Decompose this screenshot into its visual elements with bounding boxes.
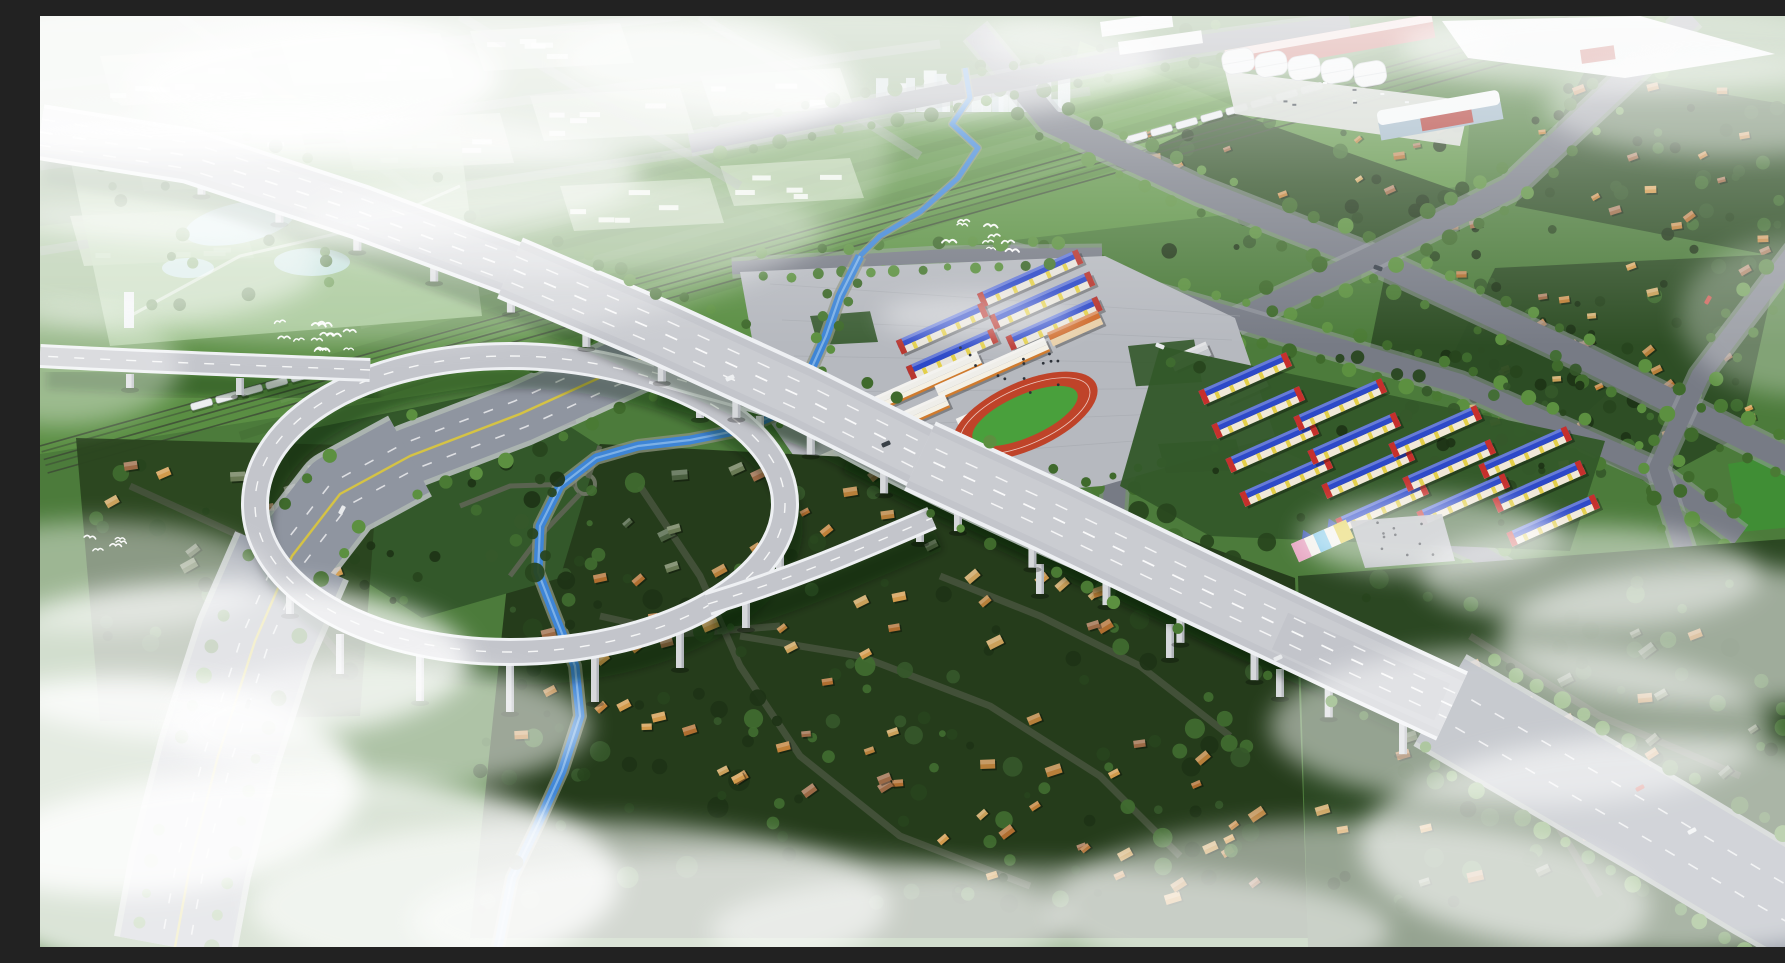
street-tree [826,345,835,354]
tree [577,768,590,781]
tree [1212,467,1219,474]
fog-patch [880,294,1080,338]
street-tree [1648,435,1659,446]
street-tree [1773,429,1784,440]
tree [1079,675,1089,685]
tree [717,791,726,800]
street-tree [1109,472,1116,479]
street-tree [1638,463,1649,474]
tree [399,596,408,605]
tree [523,619,543,639]
street-tree [1552,360,1564,372]
tree [946,670,960,684]
tree [366,541,375,550]
pedestrian [1042,362,1045,365]
tree [1215,801,1223,809]
tree [1112,638,1129,655]
street-tree [1081,477,1091,487]
street-tree [1048,464,1058,474]
village-house [980,759,997,771]
village-house [641,723,653,732]
tree [1413,369,1426,382]
pedestrian [974,364,977,367]
street-tree [1684,428,1698,442]
pedestrian [1048,353,1051,356]
tree [1097,747,1111,761]
street-tree [406,409,417,420]
tree [1351,350,1364,363]
fog-patch [170,661,590,791]
tree [898,816,909,827]
tree [822,750,835,763]
tree [714,717,722,725]
tree [1190,805,1202,817]
street-tree [1547,402,1560,415]
tree [767,817,780,830]
pedestrian [1050,360,1053,363]
street-tree [1770,467,1781,478]
tree [1575,381,1584,390]
tree [535,474,545,484]
street-tree [1673,382,1686,395]
tree [794,794,803,803]
tree [826,714,840,728]
tree [590,741,611,762]
street-tree [1674,484,1688,498]
tree [547,488,557,498]
tree [1157,503,1177,523]
tree [625,473,645,493]
tree [1535,379,1547,391]
tree [1172,744,1187,759]
tree [562,593,576,607]
tree [593,600,602,609]
tree [1362,593,1371,602]
street-tree [926,509,935,518]
tree [1503,382,1511,390]
tree [532,441,548,457]
tree [1204,692,1214,702]
tree [1084,815,1096,827]
tree [586,485,597,496]
pedestrian [1057,360,1060,363]
pedestrian [959,346,962,349]
street-tree [1741,411,1756,426]
tree [1496,434,1508,446]
street-tree [323,449,337,463]
pedestrian [1029,391,1032,394]
street-tree [339,548,349,558]
street-tree [412,489,422,499]
tree [1646,413,1654,421]
pedestrian [997,374,1000,377]
tree [1003,757,1023,777]
pedestrian [969,354,972,357]
street-tree [498,453,514,469]
tree [527,528,538,539]
tree [1185,719,1205,739]
tree [623,574,633,584]
house-roof-lit [230,471,245,476]
tree [652,759,667,774]
tree [1149,735,1162,748]
street-tree [1051,567,1062,578]
tree [1538,463,1544,469]
tree [1193,361,1206,374]
tree [742,735,754,747]
tree [565,620,575,630]
tree [525,563,545,583]
street-tree [1263,671,1272,680]
street-tree [1714,399,1728,413]
street-tree [1726,503,1741,518]
street-tree [1684,511,1700,527]
tree [707,797,728,818]
tree [1730,399,1743,412]
tree [1446,438,1456,448]
tree [587,520,593,526]
tree [897,662,913,678]
house-roof-lit [980,759,995,764]
tree [1066,651,1081,666]
tree [1120,799,1135,814]
tree [540,550,551,561]
tree [622,757,637,772]
tree [524,491,541,508]
street-tree [1704,488,1718,502]
tree [693,688,705,700]
street-tree [1606,386,1617,397]
tree [880,579,888,587]
pedestrian [1003,377,1006,380]
tree [387,550,394,557]
tree [510,534,523,547]
tree [736,646,747,657]
street-tree [586,417,599,430]
street-tree [1647,491,1662,506]
tree [744,709,763,728]
pedestrian [1057,383,1060,386]
street-tree [956,524,964,532]
tree [557,572,575,590]
tree [1200,535,1214,549]
tree [1139,653,1157,671]
tree [1488,389,1500,401]
bridge-pier [1042,564,1045,594]
tree [1400,409,1412,421]
bridge-pier [597,654,600,702]
street-tree [1468,367,1478,377]
street-tree [984,538,996,550]
tree [1545,385,1558,398]
tree [1038,782,1050,794]
tree [468,479,477,488]
tree [574,556,585,567]
street-tree [1414,349,1422,357]
tree [510,606,516,612]
tree [413,572,423,582]
tree [1166,358,1176,368]
street-tree [1659,406,1675,422]
house-roof-lit [641,723,651,727]
street-tree [1342,363,1356,377]
tree [349,554,360,565]
tree [777,831,788,842]
street-tree [1683,471,1694,482]
street-tree [470,467,483,480]
street-tree [1742,453,1753,464]
tree [1550,350,1562,362]
street-tree [439,475,452,488]
street-tree [1638,359,1652,373]
tree [772,716,783,727]
pedestrian [1022,358,1025,361]
tree [774,798,785,809]
street-tree [1637,404,1647,414]
tree [514,514,529,529]
tree [485,549,498,562]
aerial-rendering [40,16,1785,947]
tree [202,507,210,515]
tree [1335,354,1344,363]
tree [657,692,670,705]
street-tree [983,435,996,448]
tree [624,803,634,813]
tree [946,729,957,740]
street-tree [1432,391,1442,401]
tree [1230,747,1250,767]
tree [635,700,645,710]
street-tree [1635,441,1644,450]
scene-canvas [40,16,1785,947]
tree [992,625,1001,634]
street-tree [558,432,568,442]
tree [429,551,440,562]
street-tree [1439,356,1450,367]
tree [966,742,974,750]
street-tree [1716,444,1724,452]
tree [1391,368,1403,380]
tree [894,715,906,727]
tree [749,689,766,706]
pedestrian [1022,362,1025,365]
tree [1104,762,1113,771]
street-tree [1579,413,1592,426]
tree [1297,513,1306,522]
tree [1004,854,1016,866]
tree [845,659,855,669]
tree [359,580,369,590]
tree [936,586,952,602]
street-tree [1673,455,1685,467]
tree [1449,350,1462,363]
tree [1569,364,1581,376]
pedestrian [1023,377,1026,380]
tree [918,712,931,725]
tree [1462,352,1472,362]
street-tree [1696,403,1706,413]
village-house [671,469,689,482]
street-tree [891,391,903,403]
tree [929,763,939,773]
tree [1200,736,1218,754]
street-tree [861,377,873,389]
street-tree [1398,379,1414,395]
street-tree [1172,623,1183,634]
tree [1603,400,1616,413]
street-tree [1316,354,1326,364]
tree [910,784,927,801]
tree [1217,711,1233,727]
tree [585,557,598,570]
tree [1154,805,1163,814]
tree [862,684,871,693]
tree [904,726,922,744]
tree [939,730,946,737]
tree [710,701,727,718]
street-tree [352,520,366,534]
tree [1024,792,1030,798]
tree [1258,533,1277,552]
tree [1510,365,1523,378]
street-tree [302,473,312,483]
street-tree [613,402,625,414]
tree [471,505,482,516]
tree [1560,409,1567,416]
street-tree [279,498,291,510]
tree [1422,386,1433,397]
tree [983,835,996,848]
tree [550,471,565,486]
street-tree [1107,596,1120,609]
tree [748,727,758,737]
bridge-pier [242,378,245,395]
street-tree [1081,581,1094,594]
tree [642,589,662,609]
street-tree [1521,390,1536,405]
